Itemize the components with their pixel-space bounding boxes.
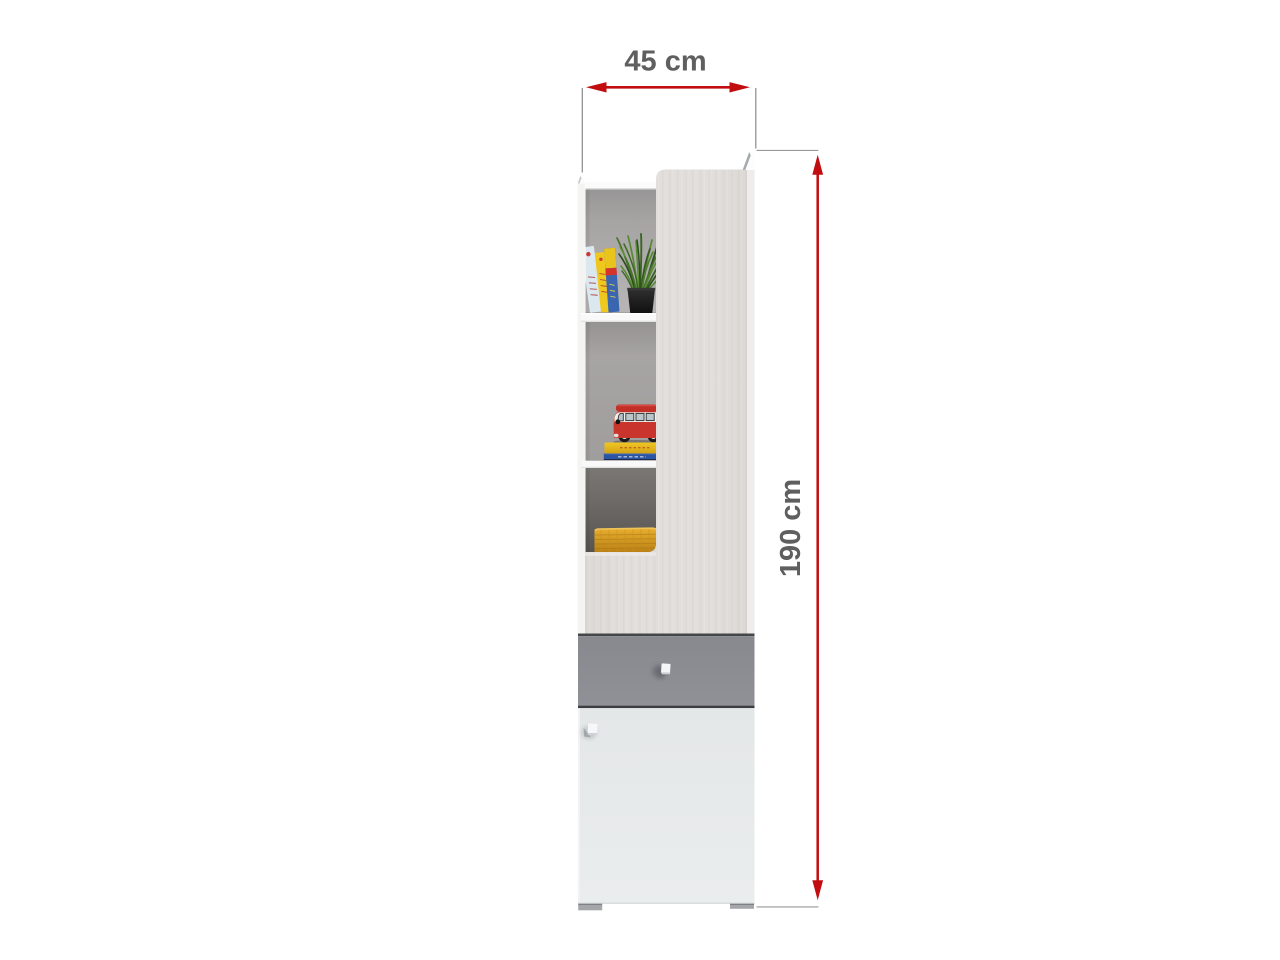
svg-text:45 cm: 45 cm [624,46,706,78]
svg-text:190 cm: 190 cm [775,479,807,577]
